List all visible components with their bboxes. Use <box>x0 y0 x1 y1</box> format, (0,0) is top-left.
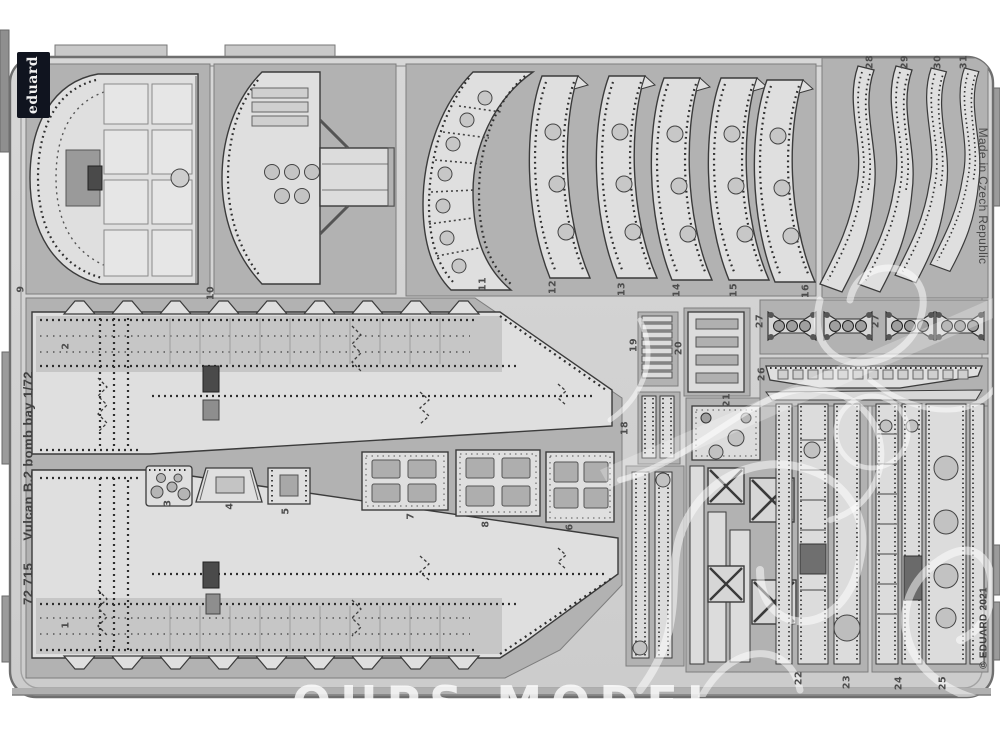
product-title: Vulcan B.2 bomb bay 1/72 <box>21 371 36 541</box>
part-number-29: 29 <box>900 55 911 69</box>
part-6 <box>546 452 614 522</box>
part-8 <box>456 450 540 516</box>
part-number-14: 14 <box>672 283 683 297</box>
part-number-7: 7 <box>406 512 417 519</box>
part-number-10: 10 <box>206 286 217 300</box>
part-number-15: 15 <box>729 283 740 297</box>
part-number-28: 28 <box>865 55 876 69</box>
part-number-23: 23 <box>842 675 853 689</box>
part-number-3: 3 <box>163 499 174 506</box>
made-in-label: Made in Czech Republic <box>976 128 990 265</box>
part-4 <box>196 468 262 502</box>
part-number-22: 22 <box>794 671 805 685</box>
part-number-31: 31 <box>959 55 970 69</box>
photoetch-sheet-photo: eduard 72 715 Vulcan B.2 bomb bay 1/72 M… <box>0 0 1000 750</box>
part-number-21: 21 <box>722 393 733 407</box>
part-number-18: 18 <box>620 421 631 435</box>
side-label: 72 715 Vulcan B.2 bomb bay 1/72 <box>21 371 36 605</box>
part-number-27a: 27 <box>755 314 766 328</box>
part-number-25: 25 <box>938 676 949 690</box>
part-number-20: 20 <box>674 341 685 355</box>
shop-watermark-text: OUPS MODEL <box>292 676 725 702</box>
part-number-4: 4 <box>225 502 236 509</box>
part-number-30: 30 <box>933 55 944 69</box>
catalog-number: 72 715 <box>21 563 36 605</box>
part-number-9: 9 <box>16 285 27 292</box>
copyright-label: © EDUARD 2021 <box>979 587 990 669</box>
part-number-24: 24 <box>894 676 905 690</box>
part-number-6: 6 <box>565 523 576 530</box>
part-number-11: 11 <box>478 277 489 291</box>
part-5 <box>268 468 310 504</box>
eduard-logo: eduard <box>17 52 50 118</box>
part-number-12: 12 <box>548 280 559 294</box>
eduard-logo-text: eduard <box>26 56 42 114</box>
part-9 <box>30 74 198 284</box>
part-number-8: 8 <box>481 520 492 527</box>
part-number-5: 5 <box>281 507 292 514</box>
part-number-26: 26 <box>757 367 768 381</box>
part-number-16: 16 <box>801 284 812 298</box>
part-number-19: 19 <box>629 338 640 352</box>
fret-artwork <box>0 0 1000 750</box>
part-7 <box>362 452 448 510</box>
part-number-13: 13 <box>617 282 628 296</box>
part-number-27b: 27 <box>871 314 882 328</box>
shop-watermark: OUPS MODEL <box>292 676 752 702</box>
part-20 <box>688 312 744 392</box>
part-number-1: 1 <box>61 621 72 628</box>
part-number-2: 2 <box>61 342 72 349</box>
